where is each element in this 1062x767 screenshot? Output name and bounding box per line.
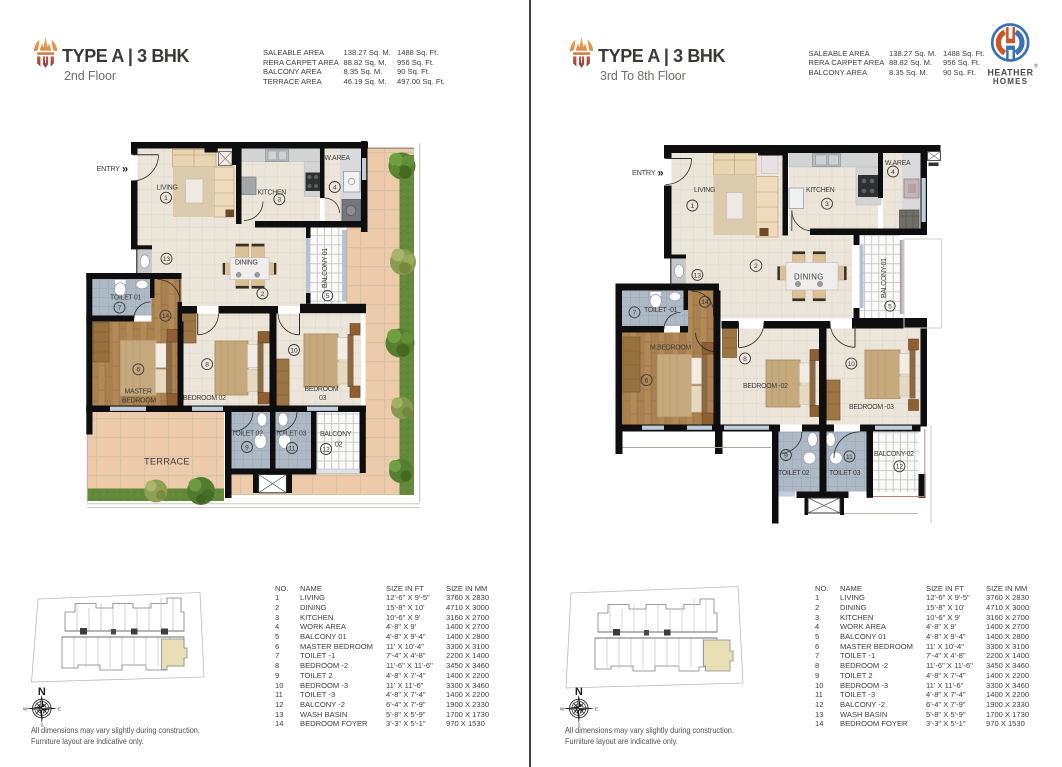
svg-text:»: » (122, 164, 128, 176)
svg-text:6: 6 (136, 367, 140, 374)
svg-text:4: 4 (333, 184, 337, 191)
svg-text:TOILET -01: TOILET -01 (644, 307, 678, 314)
svg-text:5: 5 (888, 303, 892, 310)
svg-text:13: 13 (694, 272, 702, 279)
svg-text:LIVING: LIVING (694, 187, 715, 194)
svg-text:02: 02 (335, 442, 343, 449)
svg-text:KITCHEN: KITCHEN (258, 190, 287, 197)
svg-text:TOILET 03: TOILET 03 (275, 431, 307, 438)
svg-text:DINING: DINING (235, 260, 258, 267)
svg-text:11: 11 (846, 454, 853, 461)
svg-text:TOILET 03: TOILET 03 (829, 470, 861, 477)
svg-text:W.AREA: W.AREA (325, 155, 351, 162)
svg-text:LIVING: LIVING (157, 185, 178, 192)
svg-text:7: 7 (118, 305, 122, 312)
svg-text:03: 03 (319, 395, 327, 402)
svg-text:1: 1 (164, 195, 168, 202)
svg-text:BEDROOM: BEDROOM (122, 398, 156, 405)
svg-text:TOILET 02: TOILET 02 (778, 470, 810, 477)
svg-text:2: 2 (261, 291, 265, 298)
svg-text:BALCONY-02: BALCONY-02 (874, 451, 914, 458)
svg-text:13: 13 (163, 256, 171, 263)
svg-text:7: 7 (633, 310, 637, 317)
svg-text:ENTRY: ENTRY (97, 164, 121, 173)
svg-text:TOILET 01: TOILET 01 (110, 295, 142, 302)
svg-text:1: 1 (690, 203, 694, 210)
svg-text:M.BEDROOM: M.BEDROOM (650, 345, 692, 352)
svg-text:BEDROOM: BEDROOM (305, 386, 339, 393)
svg-text:10: 10 (848, 361, 856, 368)
svg-text:14: 14 (162, 313, 170, 320)
svg-text:3: 3 (277, 197, 281, 204)
svg-text:HOMES: HOMES (993, 77, 1028, 86)
svg-text:W: W (23, 707, 28, 712)
svg-text:®: ® (1034, 63, 1038, 70)
svg-text:ENTRY: ENTRY (632, 168, 656, 177)
svg-text:9: 9 (245, 444, 249, 451)
svg-text:HEATHER: HEATHER (987, 68, 1033, 78)
svg-text:BALCONY: BALCONY (320, 431, 352, 438)
svg-text:W.AREA: W.AREA (885, 160, 911, 167)
svg-text:BEDROOM -02: BEDROOM -02 (743, 383, 788, 390)
svg-text:BALCONY 01: BALCONY 01 (322, 248, 329, 288)
svg-text:BEDROOM -03: BEDROOM -03 (849, 404, 894, 411)
svg-text:5: 5 (326, 293, 330, 300)
svg-text:BEDROOM 02: BEDROOM 02 (183, 395, 226, 402)
svg-text:11: 11 (289, 445, 296, 452)
svg-text:BALCONY-01: BALCONY-01 (881, 258, 888, 298)
svg-text:2: 2 (754, 263, 758, 270)
svg-text:12: 12 (322, 446, 330, 453)
svg-text:8: 8 (205, 362, 209, 369)
svg-text:KITCHEN: KITCHEN (806, 187, 835, 194)
svg-text:MASTER: MASTER (125, 389, 152, 396)
svg-text:TERRACE: TERRACE (144, 457, 190, 467)
svg-text:14: 14 (701, 299, 709, 306)
svg-text:12: 12 (896, 464, 904, 471)
svg-text:3: 3 (825, 201, 829, 208)
svg-text:9: 9 (784, 452, 788, 459)
svg-text:10: 10 (290, 347, 298, 354)
svg-text:4: 4 (891, 169, 895, 176)
svg-text:TOILET 02: TOILET 02 (232, 431, 264, 438)
svg-text:W: W (560, 707, 565, 712)
svg-text:E: E (595, 707, 598, 712)
svg-text:E: E (58, 707, 61, 712)
svg-text:DINING: DINING (794, 273, 824, 282)
svg-text:»: » (658, 168, 664, 180)
svg-text:6: 6 (645, 378, 649, 385)
svg-text:8: 8 (743, 356, 747, 363)
